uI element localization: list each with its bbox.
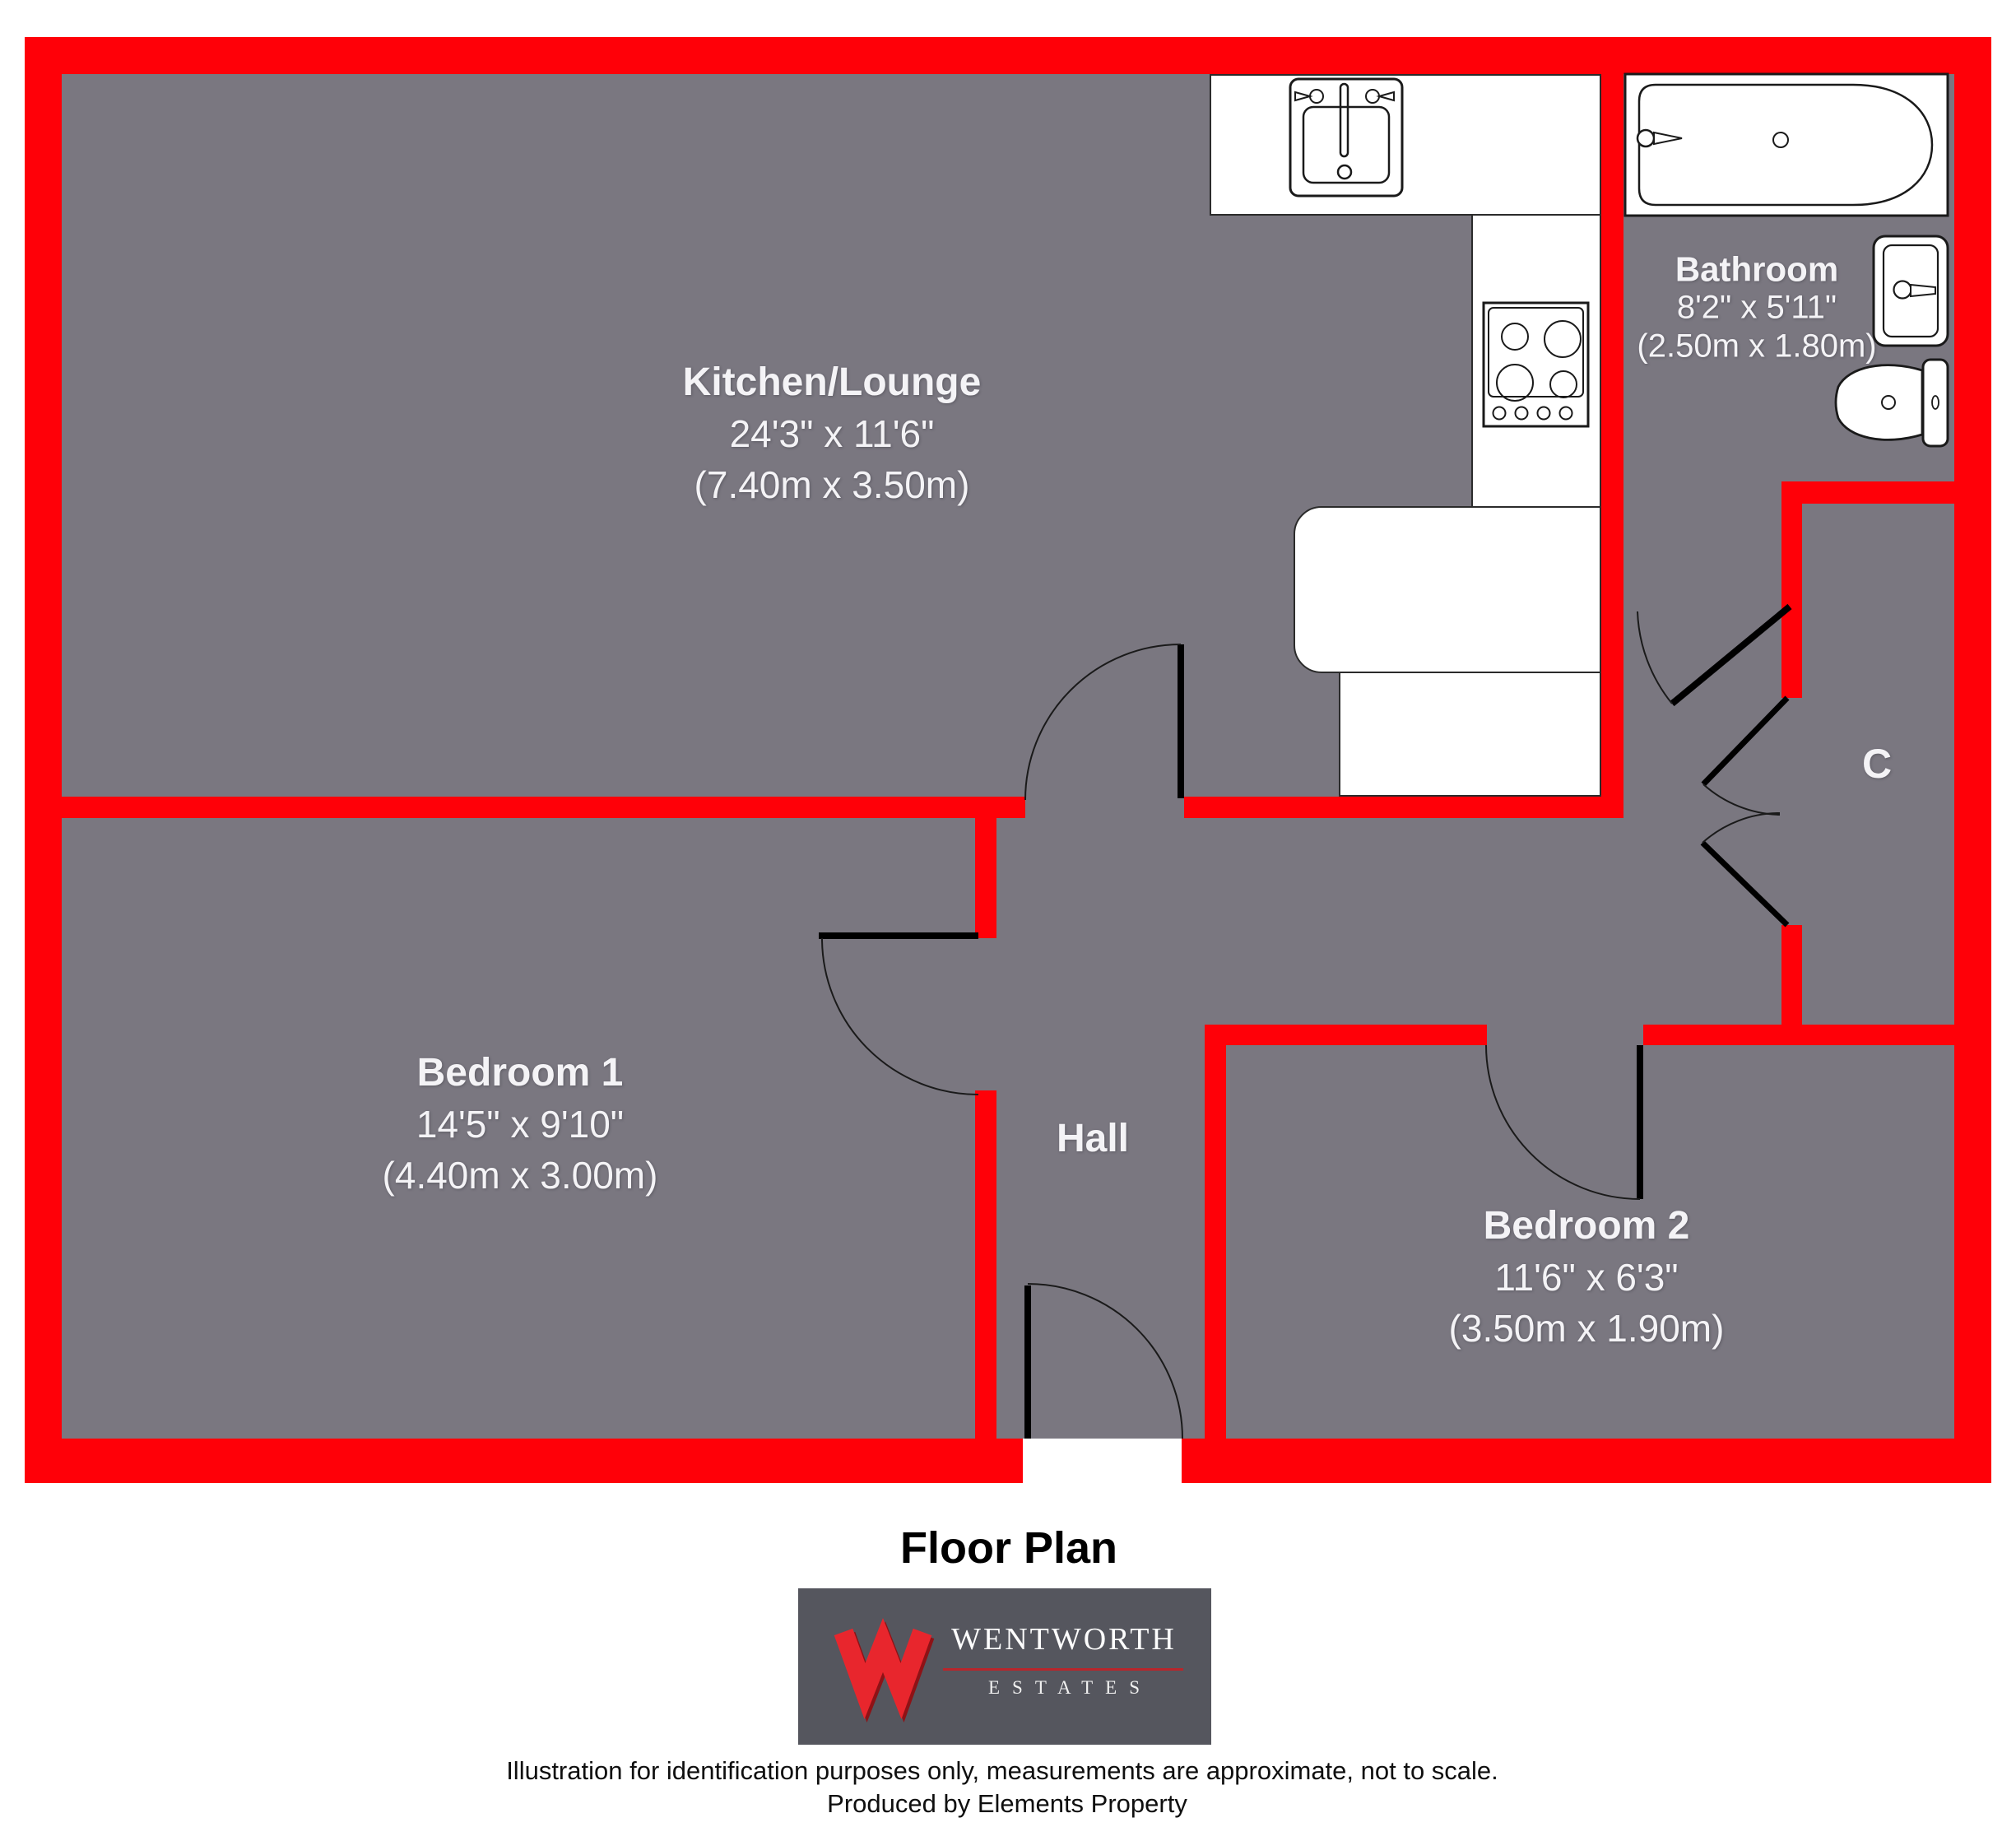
kitchen-island xyxy=(1294,506,1601,673)
kitchen-lounge-metric: (7.40m x 3.50m) xyxy=(683,459,982,510)
wall-outer-left xyxy=(25,37,62,1483)
bedroom-1-metric: (4.40m x 3.00m) xyxy=(383,1150,658,1201)
room-label-hall: Hall xyxy=(1057,1113,1129,1165)
produced-by-text: Produced by Elements Property xyxy=(827,1789,1187,1819)
wall-kitchen-south-left xyxy=(62,797,1025,818)
wall-kitchen-bathroom-divider xyxy=(1601,74,1623,817)
floor-plan: Kitchen/Lounge 24'3" x 11'6" (7.40m x 3.… xyxy=(0,0,2016,1827)
wall-cupboard-left-upper xyxy=(1781,481,1802,698)
bedroom-2-imperial: 11'6" x 6'3" xyxy=(1449,1252,1725,1303)
room-label-bathroom: Bathroom 8'2" x 5'11" (2.50m x 1.80m) xyxy=(1637,250,1876,366)
kitchen-lounge-name: Kitchen/Lounge xyxy=(683,357,982,408)
kitchen-lounge-imperial: 24'3" x 11'6" xyxy=(683,408,982,459)
wall-kitchen-south-right xyxy=(1184,797,1623,818)
cupboard-name: C xyxy=(1862,738,1892,789)
wall-bathroom-south xyxy=(1802,481,1954,504)
bedroom-2-name: Bedroom 2 xyxy=(1449,1201,1725,1252)
kitchen-counter-right xyxy=(1471,214,1601,508)
room-label-bedroom-1: Bedroom 1 14'5" x 9'10" (4.40m x 3.00m) xyxy=(383,1048,658,1201)
wall-outer-right xyxy=(1954,37,1991,1483)
hall-name: Hall xyxy=(1057,1113,1129,1165)
logo-divider xyxy=(943,1668,1183,1671)
wall-bedroom2-hall xyxy=(1205,1025,1226,1439)
page-title: Floor Plan xyxy=(900,1522,1117,1574)
bedroom-1-imperial: 14'5" x 9'10" xyxy=(383,1099,658,1150)
wall-bedroom1-hall-lower xyxy=(975,1090,996,1439)
room-label-kitchen-lounge: Kitchen/Lounge 24'3" x 11'6" (7.40m x 3.… xyxy=(683,357,982,510)
front-door-opening xyxy=(1023,1439,1182,1483)
wall-bedroom1-hall-upper xyxy=(975,817,996,938)
bedroom-2-metric: (3.50m x 1.90m) xyxy=(1449,1303,1725,1354)
kitchen-counter-top xyxy=(1210,74,1601,216)
wall-cupboard-left-lower xyxy=(1781,925,1802,1045)
wall-outer-bottom xyxy=(25,1439,1991,1483)
agency-logo-mark-icon xyxy=(798,1588,1211,1745)
bedroom-1-name: Bedroom 1 xyxy=(383,1048,658,1099)
bathroom-name: Bathroom xyxy=(1637,250,1876,289)
room-label-bedroom-2: Bedroom 2 11'6" x 6'3" (3.50m x 1.90m) xyxy=(1449,1201,1725,1354)
agency-subtitle: ESTATES xyxy=(936,1677,1191,1699)
room-label-cupboard: C xyxy=(1862,738,1892,789)
agency-name: WENTWORTH xyxy=(936,1621,1191,1657)
kitchen-counter-lower xyxy=(1339,672,1601,797)
wall-outer-top xyxy=(25,37,1991,74)
bathroom-metric: (2.50m x 1.80m) xyxy=(1637,328,1876,366)
agency-logo: WENTWORTH ESTATES xyxy=(798,1588,1211,1745)
wall-bedroom2-north-left xyxy=(1205,1025,1487,1045)
disclaimer-text: Illustration for identification purposes… xyxy=(506,1756,1498,1786)
bathroom-imperial: 8'2" x 5'11" xyxy=(1637,289,1876,328)
